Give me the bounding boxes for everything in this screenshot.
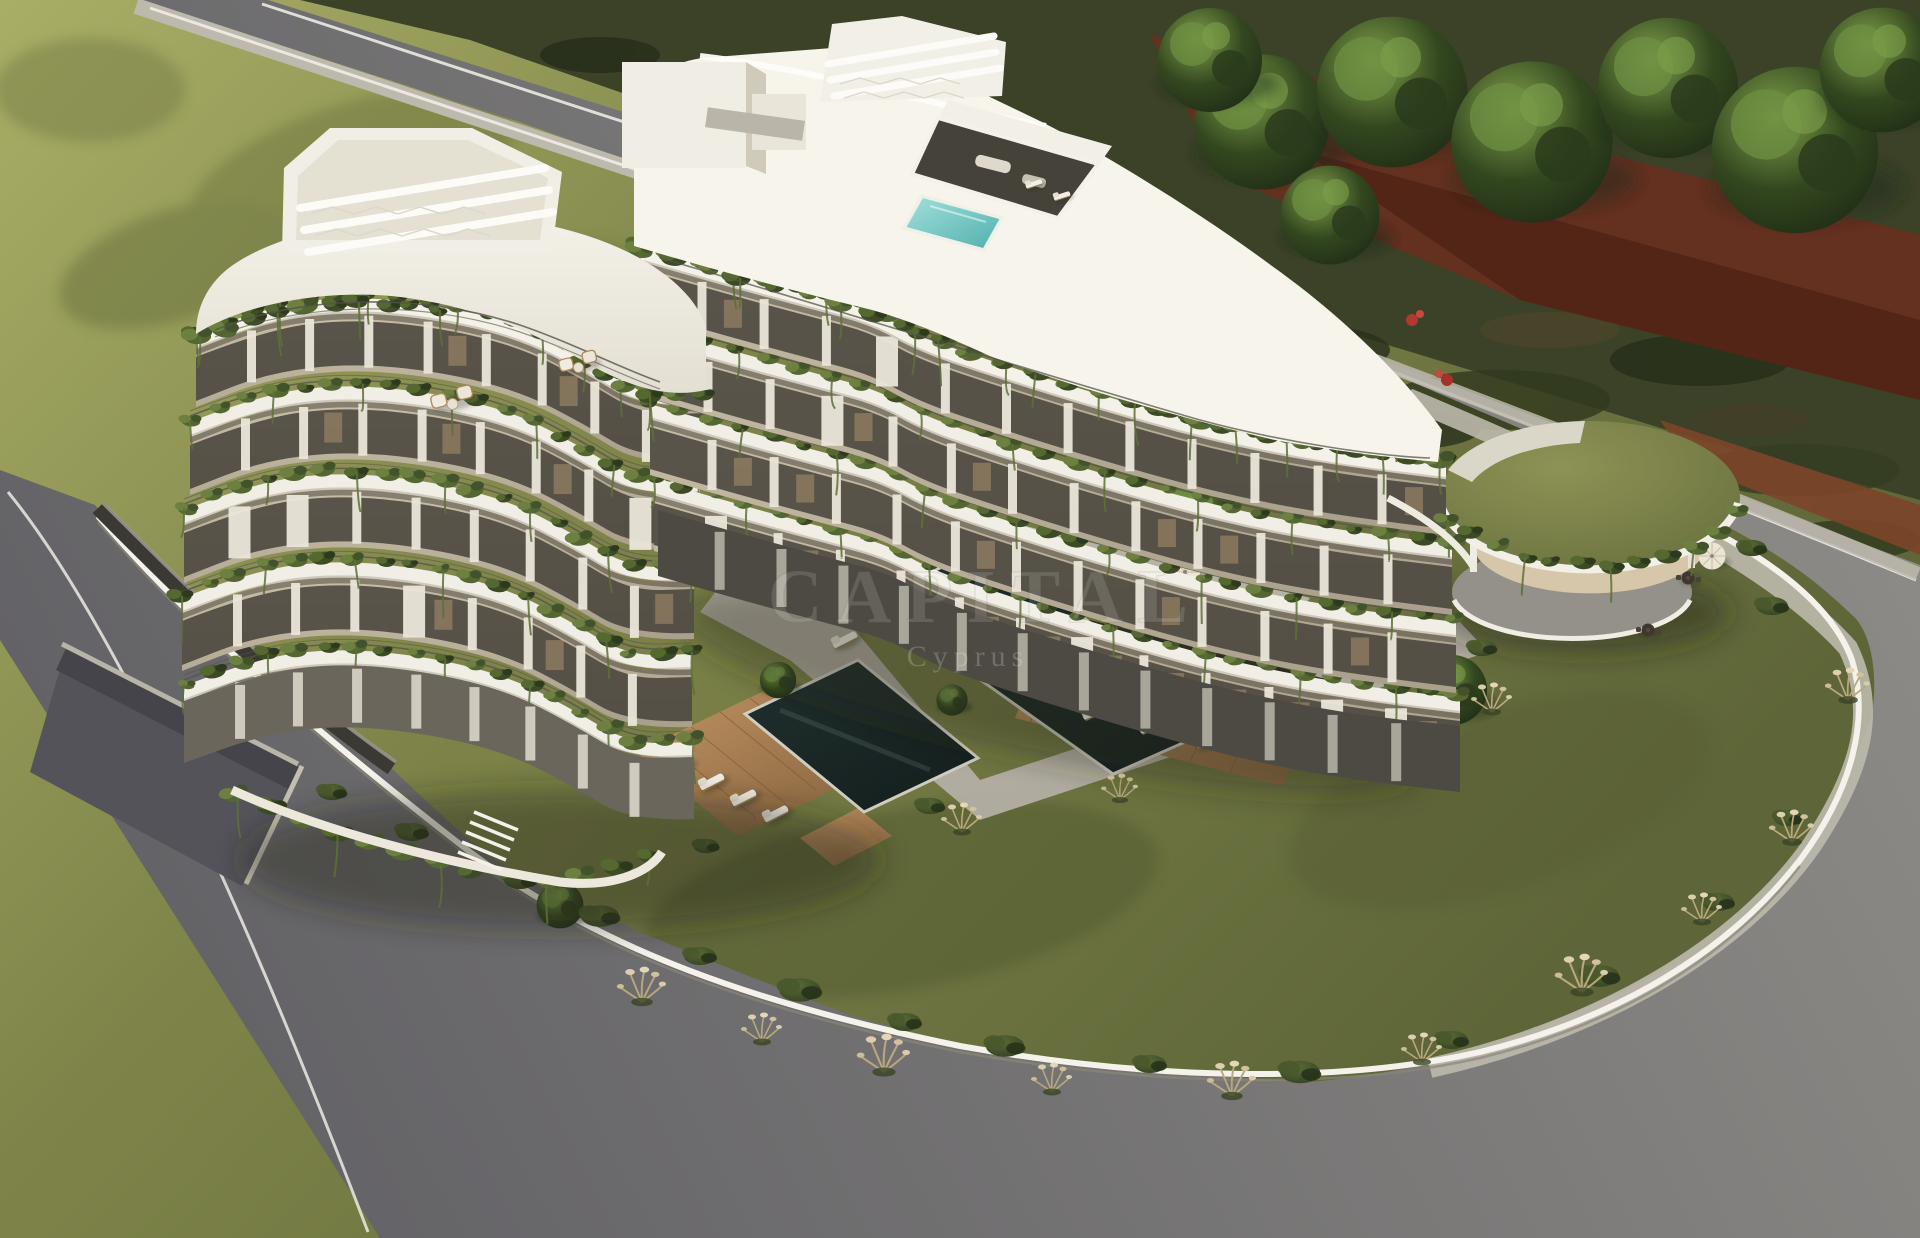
- ground-pier: [293, 672, 303, 726]
- facade-pier: [1256, 533, 1265, 583]
- hanging-vine: [840, 530, 841, 558]
- facade-pier: [578, 558, 587, 610]
- facade-pier: [1125, 421, 1134, 471]
- facade-pier: [241, 418, 250, 470]
- lit-window: [560, 376, 578, 406]
- facade-pier: [358, 404, 367, 456]
- facade-pier: [352, 492, 361, 544]
- facade-pier: [576, 646, 585, 698]
- ground-pier: [1079, 652, 1089, 710]
- lit-window: [546, 640, 564, 670]
- facade-pier: [628, 674, 637, 726]
- facade-pier: [403, 586, 425, 638]
- facade-pier: [233, 594, 242, 646]
- hanging-vine: [183, 684, 184, 715]
- facade-pier: [630, 586, 639, 638]
- hanging-vine: [739, 278, 740, 309]
- facade-pier: [482, 334, 491, 386]
- facade-pier: [947, 443, 956, 493]
- ground-pier: [1391, 723, 1401, 781]
- hanging-vine: [1396, 688, 1397, 723]
- hanging-vine: [1610, 567, 1611, 603]
- facade-pier: [1250, 453, 1259, 503]
- facade-pier: [941, 363, 950, 413]
- facade-pier: [1070, 483, 1079, 533]
- ground-pier: [629, 763, 639, 817]
- hanging-vine: [443, 571, 444, 619]
- facade-pier: [590, 382, 599, 434]
- ground-pier: [352, 669, 362, 723]
- ground-pier: [1328, 715, 1338, 773]
- facade-pier: [708, 440, 717, 490]
- facade-pier: [1320, 546, 1329, 596]
- facade-pier: [822, 316, 831, 366]
- watermark-subtitle: Cyprus: [907, 640, 1030, 673]
- hanging-vine: [1292, 519, 1293, 555]
- facade-pier: [1324, 624, 1333, 674]
- facade-pier: [832, 474, 841, 524]
- hanging-vine: [1287, 439, 1288, 477]
- ground-pier: [1140, 671, 1150, 729]
- hanging-vine: [536, 421, 537, 458]
- facade-pier: [287, 495, 309, 547]
- facade-pier: [229, 506, 251, 558]
- lit-window: [1351, 637, 1369, 665]
- facade-pier: [470, 510, 479, 562]
- facade-pier: [476, 422, 485, 474]
- lit-window: [655, 594, 673, 624]
- facade-pier: [1314, 466, 1323, 516]
- pavilion: [1440, 421, 1740, 654]
- facade-pier: [299, 407, 308, 459]
- facade-pier: [1188, 439, 1197, 489]
- lit-window: [796, 475, 814, 503]
- facade-pier: [291, 583, 300, 635]
- lit-window: [448, 336, 466, 366]
- watermark-title: CAPITAL: [768, 555, 1202, 639]
- hanging-vine: [1296, 597, 1297, 640]
- facade-pier: [760, 299, 769, 349]
- facade-pier: [1064, 403, 1073, 453]
- render-canvas: CAPITAL Cyprus: [0, 0, 1920, 1238]
- facade-pier: [584, 470, 593, 522]
- ground-pier: [235, 685, 245, 739]
- facade-pier: [1260, 611, 1269, 661]
- facade-pier: [1384, 554, 1393, 604]
- facade-pier: [766, 379, 775, 429]
- lit-window: [554, 464, 572, 494]
- ground-pier: [525, 706, 535, 760]
- hanging-vine: [1016, 522, 1017, 549]
- ground-pier: [411, 675, 421, 729]
- facade-pier: [893, 495, 902, 545]
- facade-pier: [412, 498, 421, 550]
- lit-window: [973, 463, 991, 491]
- facade-pier: [532, 441, 541, 493]
- lit-window: [855, 413, 873, 441]
- lit-window: [1158, 519, 1176, 547]
- facade-pier: [418, 410, 427, 462]
- facade-pier: [424, 322, 433, 374]
- ground-pier: [1202, 688, 1212, 746]
- facade-pier: [468, 598, 477, 650]
- ground-pier: [578, 735, 588, 789]
- lit-window: [734, 458, 752, 486]
- lit-window: [324, 413, 342, 443]
- lit-window: [1220, 536, 1238, 564]
- facade-pier: [1008, 464, 1017, 514]
- facade-pier: [305, 319, 314, 371]
- facade-pier: [629, 498, 651, 550]
- lit-window: [442, 424, 460, 454]
- ground-pier: [469, 687, 479, 741]
- facade-pier: [247, 330, 256, 382]
- ground-pier: [715, 532, 725, 590]
- facade-pier: [524, 617, 533, 669]
- facade-pier: [889, 417, 898, 467]
- facade-pier: [1378, 474, 1387, 524]
- facade-pier: [1131, 501, 1140, 551]
- facade-pier: [770, 457, 779, 507]
- ground-pier: [1265, 702, 1275, 760]
- facade-pier: [1388, 632, 1397, 682]
- facade-pier: [876, 337, 898, 387]
- aerial-render: CAPITAL Cyprus: [0, 0, 1920, 1238]
